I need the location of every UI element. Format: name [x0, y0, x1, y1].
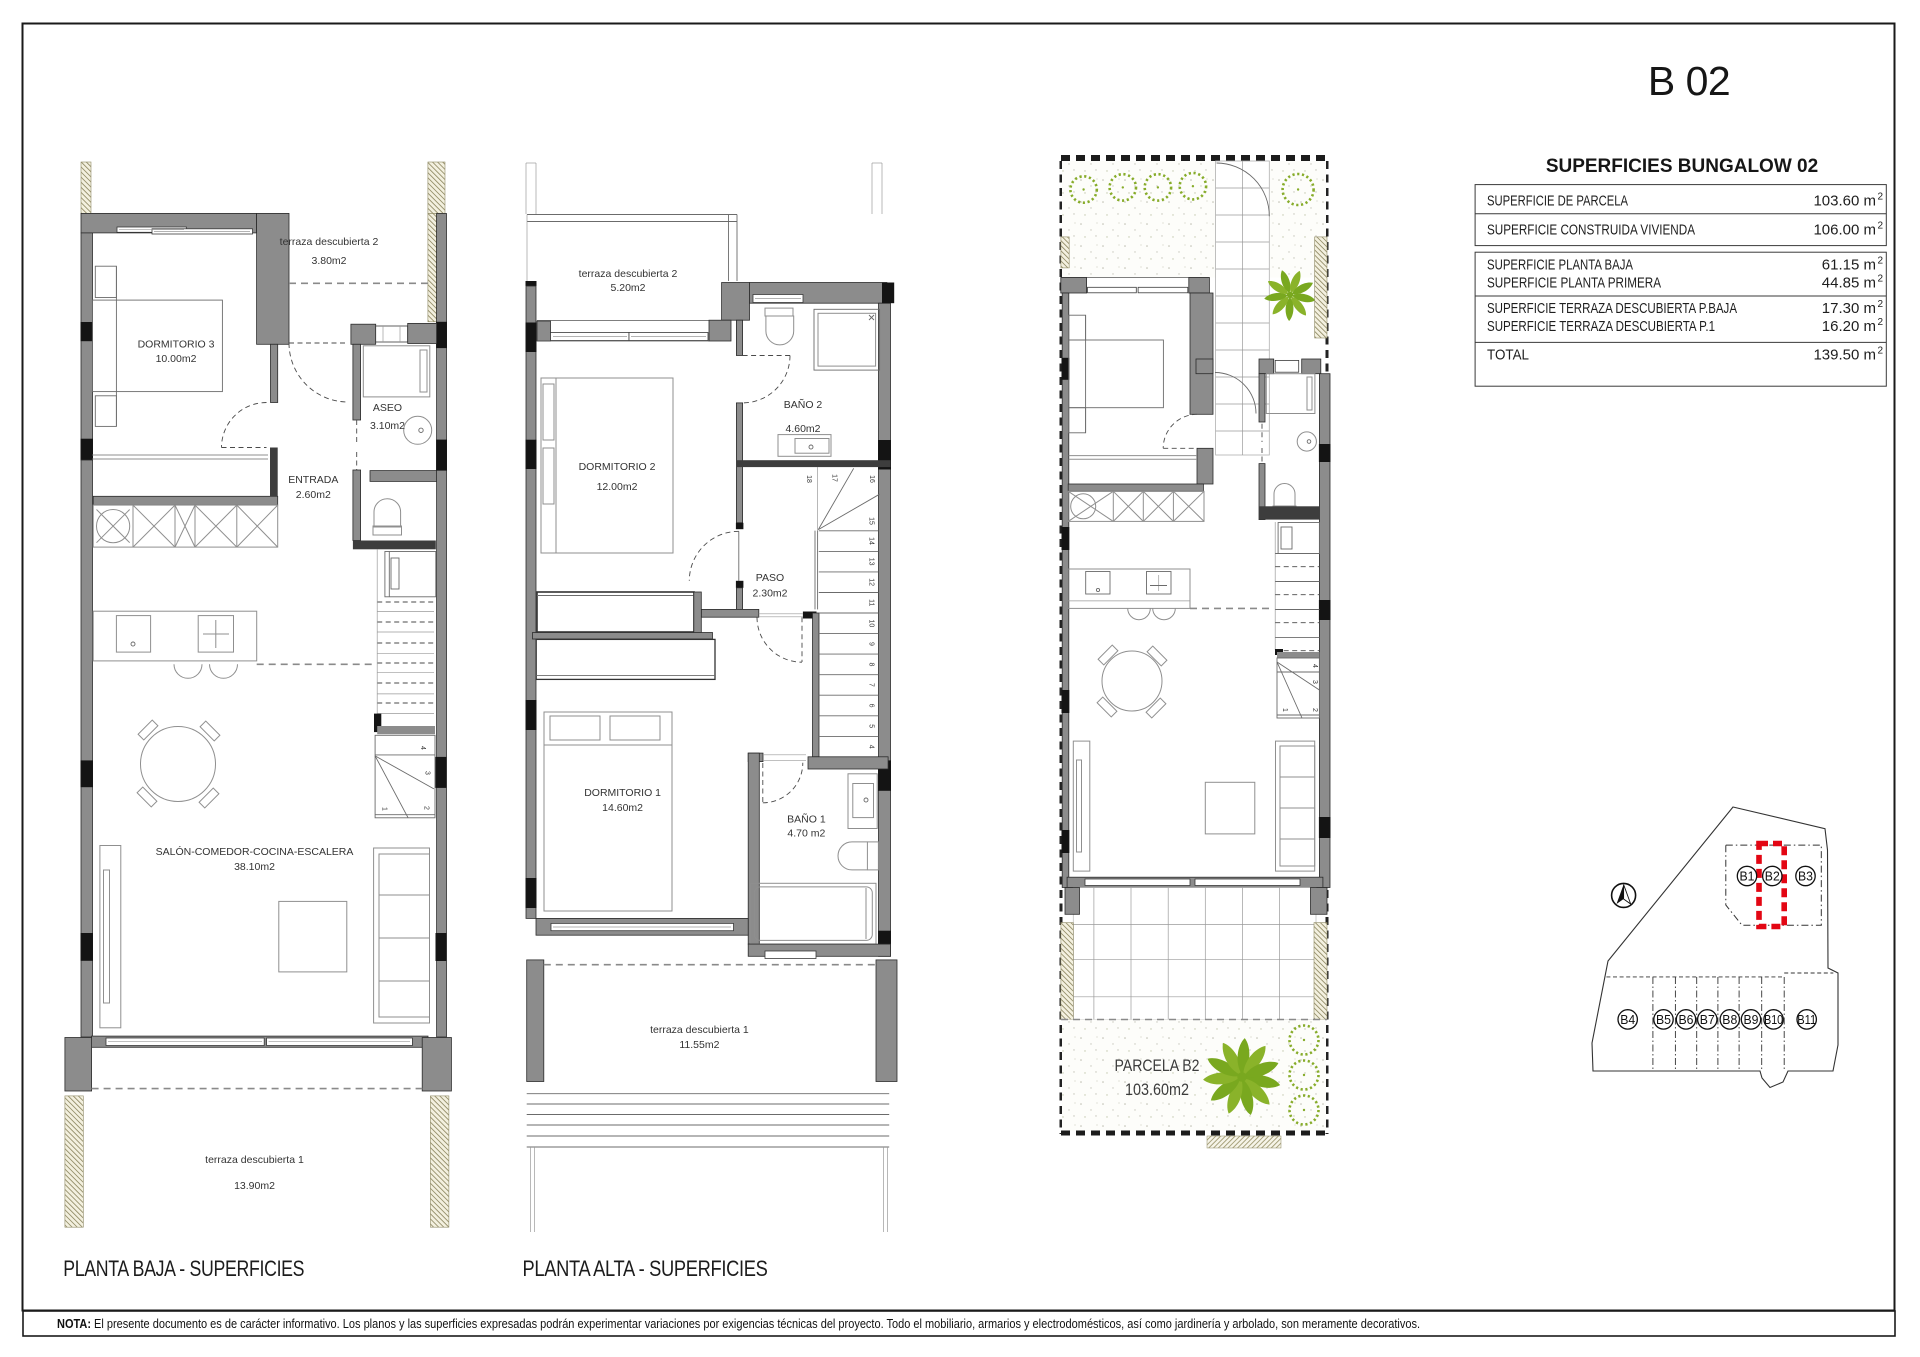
- svg-text:17.30 m: 17.30 m: [1822, 300, 1876, 317]
- svg-text:2: 2: [1878, 299, 1884, 310]
- svg-text:4.60m2: 4.60m2: [785, 423, 820, 435]
- svg-text:ASEO: ASEO: [373, 402, 402, 414]
- svg-text:4: 4: [868, 745, 875, 749]
- svg-text:B8: B8: [1722, 1012, 1737, 1027]
- svg-text:SALÓN-COMEDOR-COCINA-ESCALERA: SALÓN-COMEDOR-COCINA-ESCALERA: [156, 845, 354, 858]
- svg-text:14.60m2: 14.60m2: [602, 802, 643, 814]
- svg-text:103.60 m: 103.60 m: [1813, 193, 1876, 210]
- svg-text:7: 7: [868, 683, 875, 687]
- svg-text:ENTRADA: ENTRADA: [288, 474, 338, 486]
- svg-text:2: 2: [1878, 256, 1884, 267]
- svg-text:NOTA: El presente documento e: NOTA: El presente documento es de caráct…: [57, 1316, 1420, 1331]
- svg-text:PLANTA BAJA - SUPERFICIES: PLANTA BAJA - SUPERFICIES: [63, 1256, 304, 1281]
- svg-text:2.30m2: 2.30m2: [752, 588, 787, 600]
- svg-text:15: 15: [868, 517, 875, 525]
- svg-text:B11: B11: [1797, 1012, 1816, 1027]
- svg-text:DORMITORIO 1: DORMITORIO 1: [584, 787, 661, 799]
- svg-text:11.55m2: 11.55m2: [679, 1039, 719, 1051]
- svg-text:1: 1: [380, 807, 387, 811]
- svg-text:106.00 m: 106.00 m: [1813, 222, 1876, 239]
- svg-text:BAÑO 1: BAÑO 1: [787, 813, 826, 826]
- svg-text:terraza descubierta 2: terraza descubierta 2: [280, 236, 379, 248]
- svg-text:11: 11: [868, 599, 875, 606]
- svg-text:B5: B5: [1656, 1012, 1671, 1027]
- svg-text:B3: B3: [1798, 869, 1813, 884]
- svg-text:4: 4: [419, 746, 426, 750]
- svg-text:SUPERFICIE TERRAZA DESCUBIERTA: SUPERFICIE TERRAZA DESCUBIERTA P.1: [1487, 318, 1715, 335]
- svg-text:B4: B4: [1620, 1012, 1635, 1027]
- svg-text:TOTAL: TOTAL: [1487, 347, 1529, 364]
- svg-text:SUPERFICIE PLANTA BAJA: SUPERFICIE PLANTA BAJA: [1487, 257, 1633, 274]
- svg-text:2: 2: [1878, 346, 1884, 357]
- svg-text:B2: B2: [1765, 869, 1780, 884]
- svg-text:BAÑO 2: BAÑO 2: [784, 398, 823, 411]
- svg-text:12.00m2: 12.00m2: [597, 481, 638, 493]
- svg-text:13: 13: [868, 558, 875, 566]
- svg-text:3: 3: [1311, 680, 1318, 684]
- svg-text:SUPERFICIE CONSTRUIDA VIVIENDA: SUPERFICIE CONSTRUIDA VIVIENDA: [1487, 222, 1695, 239]
- svg-text:139.50 m: 139.50 m: [1813, 347, 1876, 364]
- svg-text:DORMITORIO 2: DORMITORIO 2: [579, 461, 656, 473]
- svg-text:SUPERFICIE TERRAZA DESCUBIERTA: SUPERFICIE TERRAZA DESCUBIERTA P.BAJA: [1487, 300, 1737, 317]
- svg-text:10: 10: [868, 620, 875, 628]
- svg-text:3: 3: [424, 771, 431, 775]
- svg-text:SUPERFICIE DE PARCELA: SUPERFICIE DE PARCELA: [1487, 193, 1628, 210]
- svg-text:PASO: PASO: [756, 572, 784, 584]
- svg-text:103.60m2: 103.60m2: [1125, 1081, 1189, 1099]
- svg-text:16: 16: [868, 475, 875, 483]
- svg-text:2: 2: [1878, 317, 1884, 328]
- svg-text:13.90m2: 13.90m2: [234, 1180, 275, 1192]
- svg-text:1: 1: [1281, 708, 1288, 712]
- svg-text:17: 17: [830, 474, 837, 482]
- svg-text:3.10m2: 3.10m2: [370, 420, 405, 432]
- svg-text:8: 8: [868, 663, 875, 667]
- svg-text:14: 14: [868, 537, 875, 545]
- svg-text:2: 2: [1311, 708, 1318, 712]
- svg-text:2: 2: [1878, 221, 1884, 232]
- svg-text:61.15 m: 61.15 m: [1822, 257, 1876, 274]
- svg-text:2: 2: [1878, 274, 1884, 285]
- svg-text:SUPERFICIES BUNGALOW 02: SUPERFICIES BUNGALOW 02: [1546, 156, 1818, 177]
- svg-text:10.00m2: 10.00m2: [156, 353, 197, 365]
- svg-text:5.20m2: 5.20m2: [610, 282, 645, 294]
- svg-text:DORMITORIO 3: DORMITORIO 3: [138, 339, 215, 351]
- svg-text:3.80m2: 3.80m2: [311, 255, 346, 267]
- svg-text:12: 12: [868, 578, 875, 586]
- svg-text:B9: B9: [1744, 1012, 1759, 1027]
- svg-text:6: 6: [868, 704, 875, 708]
- svg-text:SUPERFICIE PLANTA PRIMERA: SUPERFICIE PLANTA PRIMERA: [1487, 275, 1661, 292]
- svg-text:B6: B6: [1679, 1012, 1694, 1027]
- svg-text:9: 9: [868, 642, 875, 646]
- svg-text:4.70 m2: 4.70 m2: [787, 828, 825, 840]
- svg-text:B7: B7: [1700, 1012, 1715, 1027]
- svg-text:4: 4: [1311, 664, 1318, 668]
- svg-text:5: 5: [868, 724, 875, 728]
- svg-text:18: 18: [805, 475, 812, 483]
- svg-text:2.60m2: 2.60m2: [296, 489, 331, 501]
- svg-text:16.20 m: 16.20 m: [1822, 318, 1876, 335]
- svg-text:B 02: B 02: [1648, 58, 1730, 104]
- svg-text:B1: B1: [1740, 869, 1755, 884]
- svg-text:PLANTA ALTA - SUPERFICIES: PLANTA ALTA - SUPERFICIES: [523, 1256, 768, 1281]
- svg-text:2: 2: [423, 806, 430, 810]
- svg-text:2: 2: [1878, 192, 1884, 203]
- svg-text:terraza descubierta 1: terraza descubierta 1: [650, 1024, 749, 1036]
- svg-text:38.10m2: 38.10m2: [234, 861, 275, 873]
- svg-text:terraza descubierta 2: terraza descubierta 2: [579, 268, 678, 280]
- svg-text:B10: B10: [1764, 1012, 1783, 1027]
- svg-text:PARCELA B2: PARCELA B2: [1115, 1057, 1200, 1075]
- svg-text:44.85 m: 44.85 m: [1822, 275, 1876, 292]
- svg-text:terraza descubierta 1: terraza descubierta 1: [205, 1154, 304, 1166]
